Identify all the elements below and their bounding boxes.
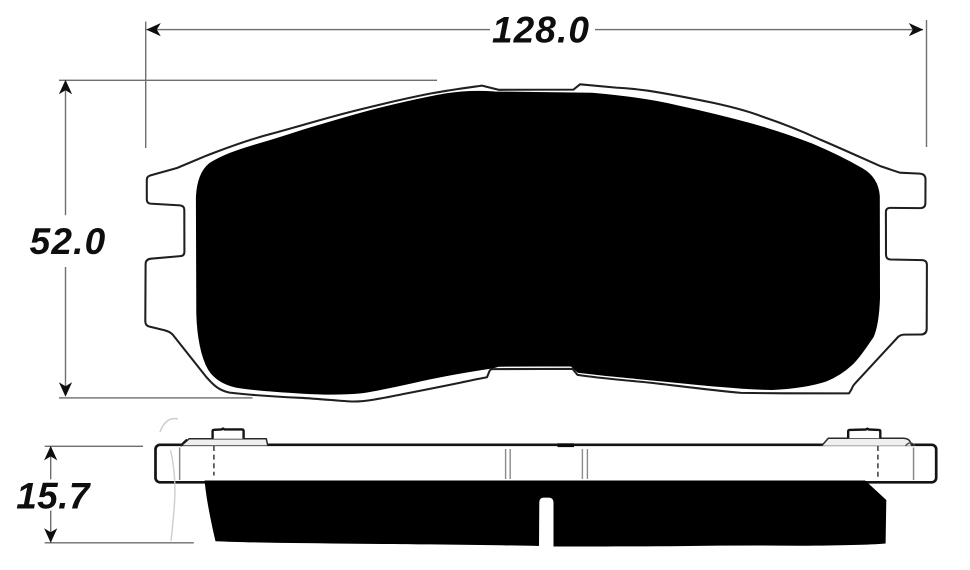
svg-text:128.0: 128.0: [492, 9, 590, 50]
svg-text:52.0: 52.0: [30, 221, 107, 262]
svg-text:15.7: 15.7: [16, 476, 92, 517]
